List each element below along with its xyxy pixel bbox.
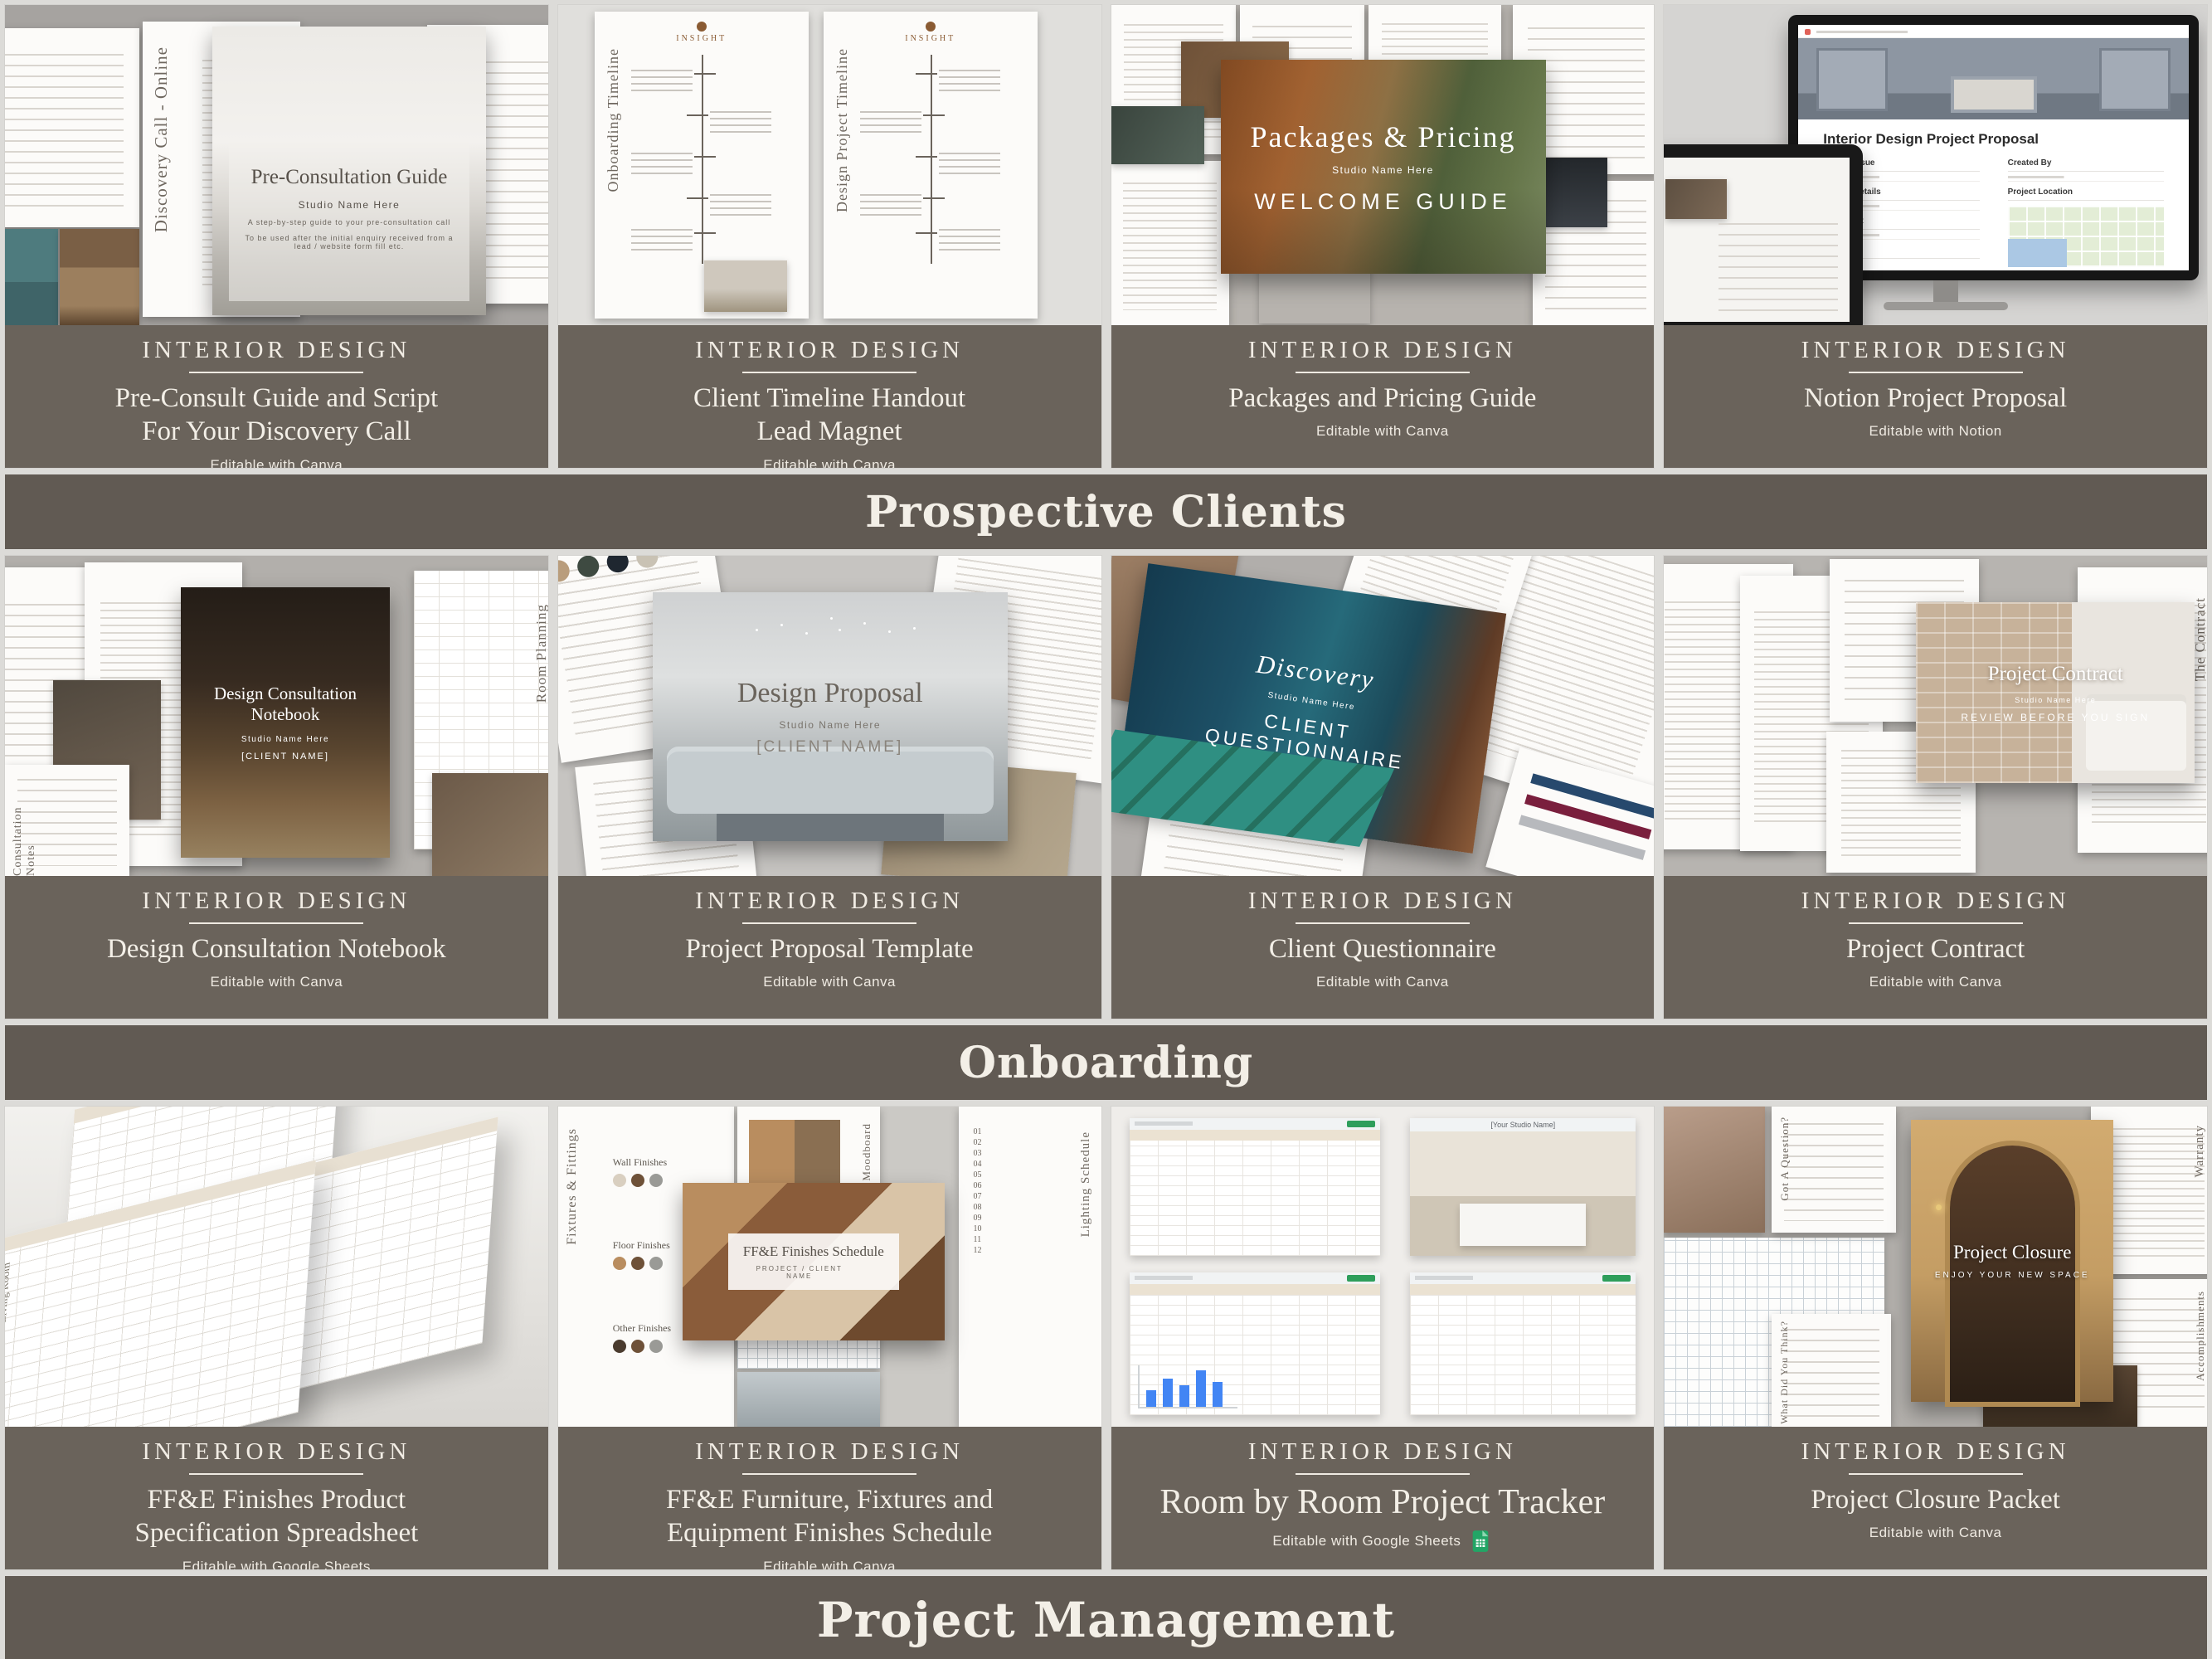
section-banner-onboarding: Onboarding — [5, 1025, 2207, 1100]
product-card-project-proposal: Design Proposal Studio Name Here [CLIENT… — [558, 556, 1101, 1019]
sheet-label: Living Room — [5, 1261, 13, 1325]
photo-warm-living-room — [60, 229, 139, 325]
cover-title: Design Proposal — [737, 678, 923, 709]
product-card-ffe-schedule: Fixtures & Fittings Wall Finishes Floor … — [558, 1107, 1101, 1569]
cover-studio: Studio Name Here — [299, 199, 401, 211]
bed-shape — [2086, 694, 2186, 771]
vertical-label: What Did You Think? — [1778, 1321, 1791, 1424]
thumbnail-project-contract: The Contract Project Contract Studio Nam… — [1664, 556, 2207, 876]
thumbnail-consultation-notebook: Room Planning Consultation Notes Design … — [5, 556, 548, 876]
shelf-right — [2099, 48, 2171, 111]
thumbnail-project-proposal: Design Proposal Studio Name Here [CLIENT… — [558, 556, 1101, 876]
card-note: Editable with Canva — [1111, 423, 1655, 440]
divider-line — [742, 372, 916, 373]
card-note: Editable with Canva — [558, 974, 1101, 990]
field-label: Created By — [2008, 153, 2164, 172]
photo-bedroom — [432, 773, 548, 876]
cover-studio: Studio Name Here — [241, 735, 329, 744]
notion-col-right: Created By Project Location — [2008, 153, 2164, 267]
card-row-2: Room Planning Consultation Notes Design … — [5, 556, 2207, 1019]
vertical-label: Onboarding Timeline — [605, 48, 622, 192]
product-card-ffe-spreadsheet: Living Furniture Living Room INTERIOR DE… — [5, 1107, 548, 1569]
insight-logo: INSIGHT — [595, 22, 809, 43]
thumbnail-notion-proposal: Interior Design Project Proposal Date of… — [1664, 5, 2207, 325]
lighting-schedule-page: 01 02 03 04 05 06 07 08 09 10 11 12 Ligh… — [959, 1107, 1101, 1427]
divider-line — [189, 922, 363, 924]
photo-thumbnail — [1665, 179, 1727, 219]
color-bar — [1519, 815, 1646, 860]
vertical-label: Fixtures & Fittings — [565, 1128, 580, 1245]
divider-line — [1849, 1473, 2023, 1475]
sheet-grid — [1130, 1141, 1380, 1256]
card-note: Editable with Canva — [5, 974, 548, 990]
card-caption: INTERIOR DESIGN Packages and Pricing Gui… — [1111, 325, 1655, 468]
cover-line: A step-by-step guide to your pre-consult… — [248, 218, 451, 226]
sheet-screenshot-kitchen: [Your Studio Name] — [1410, 1118, 1636, 1256]
cover-studio: Studio Name Here — [2015, 696, 2096, 704]
vertical-label: Got A Question? — [1778, 1117, 1791, 1201]
thumbnail-packages-pricing: Packages & Pricing Studio Name Here WELC… — [1111, 5, 1655, 325]
sheet-screenshot — [1130, 1118, 1380, 1256]
chandelier-lights — [830, 617, 833, 620]
card-title: Client Timeline Handout Lead Magnet — [558, 382, 1101, 449]
photo-room — [704, 260, 787, 312]
spreadsheet-sheet: Living Room — [5, 1160, 316, 1427]
notion-topbar — [1798, 25, 2189, 38]
card-title: Project Proposal Template — [558, 932, 1101, 966]
map-thumbnail — [2008, 206, 2164, 267]
text-lines — [1123, 182, 1218, 310]
thumbnail-ffe-spreadsheet: Living Furniture Living Room — [5, 1107, 548, 1427]
card-title: FF&E Furniture, Fixtures and Equipment F… — [558, 1483, 1101, 1550]
cover-welcome-guide: Packages & Pricing Studio Name Here WELC… — [1221, 60, 1546, 274]
card-caption: INTERIOR DESIGN Design Consultation Note… — [5, 876, 548, 1019]
laptop-screen — [1664, 158, 1850, 322]
card-title: Client Questionnaire — [1111, 932, 1655, 966]
notes-page: Consultation Notes — [5, 765, 129, 876]
cover-studio: Studio Name Here — [1332, 164, 1434, 176]
photo-living-room — [737, 1372, 880, 1427]
card-eyebrow: INTERIOR DESIGN — [1664, 888, 2207, 915]
product-card-notion-proposal: Interior Design Project Proposal Date of… — [1664, 5, 2207, 468]
product-card-room-tracker: [Your Studio Name] — [1111, 1107, 1655, 1569]
fireplace — [1951, 76, 2037, 113]
sheet-toolbar — [1130, 1272, 1380, 1284]
vertical-label: Lighting Schedule — [1079, 1131, 1093, 1237]
text-lines — [1784, 1329, 1879, 1417]
timeline-page-left: INSIGHT Onboarding Timeline — [595, 12, 809, 319]
cover-project-contract: Project Contract Studio Name Here REVIEW… — [1916, 602, 2195, 783]
text-lines — [5, 54, 124, 209]
sheet-grid — [1410, 1295, 1636, 1415]
card-eyebrow: INTERIOR DESIGN — [1111, 337, 1655, 364]
sheet-toolbar — [1410, 1272, 1636, 1284]
timeline-entry — [939, 70, 1000, 95]
card-note: Editable with Notion — [1664, 423, 2207, 440]
monitor-stand — [1933, 280, 1958, 304]
sheet-toolbar — [1130, 1118, 1380, 1130]
mini-bar-chart — [1138, 1365, 1237, 1408]
card-caption: INTERIOR DESIGN Project Proposal Templat… — [558, 876, 1101, 1019]
cover-title: Pre-Consultation Guide — [251, 166, 448, 189]
card-title: Packages and Pricing Guide — [1111, 382, 1655, 415]
card-note: Editable with Canva — [558, 457, 1101, 469]
cover-title: Packages & Pricing — [1251, 119, 1516, 154]
card-title: Design Consultation Notebook — [5, 932, 548, 966]
section-banner-prospective-clients: Prospective Clients — [5, 474, 2207, 549]
monitor-base — [1884, 302, 2008, 310]
card-note: Editable with Google Sheets — [5, 1559, 548, 1570]
rug-shape — [717, 814, 944, 841]
timeline-entry — [631, 153, 693, 178]
product-card-packages-pricing: Packages & Pricing Studio Name Here WELC… — [1111, 5, 1655, 468]
cover-studio: Studio Name Here — [1266, 690, 1355, 712]
timeline-entry — [710, 194, 771, 219]
document-page: What Did You Think? — [1772, 1314, 1891, 1427]
vertical-label: Warranty — [2193, 1125, 2207, 1177]
card-title: Project Contract — [1664, 932, 2207, 966]
vertical-label: Design Project Timeline — [834, 48, 851, 212]
document-page: Got A Question? — [1772, 1107, 1896, 1233]
divider-line — [1849, 372, 2023, 373]
card-note: Editable with Canva — [1664, 1525, 2207, 1541]
insight-logo: INSIGHT — [824, 22, 1038, 43]
photo-teal-living-room — [5, 229, 58, 325]
product-card-consultation-notebook: Room Planning Consultation Notes Design … — [5, 556, 548, 1019]
cover-line: REVIEW BEFORE YOU SIGN — [1961, 712, 2150, 723]
card-eyebrow: INTERIOR DESIGN — [5, 888, 548, 915]
timeline-entry — [939, 153, 1000, 178]
cover-line: ENJOY YOUR NEW SPACE — [1935, 1271, 2090, 1280]
thumbnail-ffe-schedule: Fixtures & Fittings Wall Finishes Floor … — [558, 1107, 1101, 1427]
divider-line — [1296, 922, 1470, 924]
lantern-light — [1936, 1204, 1942, 1210]
card-eyebrow: INTERIOR DESIGN — [1111, 1438, 1655, 1466]
thumbnail-pre-consult: Discovery Call - Online Pre-Consultation… — [5, 5, 548, 325]
cover-line: WELCOME GUIDE — [1254, 189, 1512, 215]
card-note: Editable with Google Sheets — [1111, 1530, 1655, 1553]
card-title: Notion Project Proposal — [1664, 382, 2207, 415]
card-title: Pre-Consult Guide and Script For Your Di… — [5, 382, 548, 449]
schedule-numbers: 01 02 03 04 05 06 07 08 09 10 11 12 — [974, 1126, 982, 1256]
cover-line: [CLIENT NAME] — [756, 738, 903, 757]
product-card-client-timeline: INSIGHT Onboarding Timeline INSIGHT Desi… — [558, 5, 1101, 468]
cover-title: Discovery — [1254, 649, 1376, 695]
cover-ffe-schedule: FF&E Finishes Schedule PROJECT / CLIENT … — [683, 1183, 945, 1340]
cover-pre-consultation-guide: Pre-Consultation Guide Studio Name Here … — [212, 27, 486, 315]
vertical-label: Consultation Notes — [12, 773, 38, 876]
timeline-entry — [710, 111, 771, 136]
card-note: Editable with Canva — [1111, 974, 1655, 990]
card-eyebrow: INTERIOR DESIGN — [558, 888, 1101, 915]
cover-project-closure: Project Closure ENJOY YOUR NEW SPACE — [1911, 1120, 2113, 1402]
material-swatches — [613, 1257, 626, 1270]
timeline-entry — [631, 229, 693, 254]
card-eyebrow: INTERIOR DESIGN — [558, 1438, 1101, 1466]
thumbnail-client-timeline: INSIGHT Onboarding Timeline INSIGHT Desi… — [558, 5, 1101, 325]
card-title: FF&E Finishes Product Specification Spre… — [5, 1483, 548, 1550]
timeline-entry — [631, 70, 693, 95]
card-eyebrow: INTERIOR DESIGN — [558, 337, 1101, 364]
timeline-entry — [860, 111, 921, 136]
timeline-page-right: INSIGHT Design Project Timeline — [824, 12, 1038, 319]
cover-design-proposal: Design Proposal Studio Name Here [CLIENT… — [653, 592, 1008, 841]
cover-consultation-notebook: Design Consultation Notebook Studio Name… — [181, 587, 390, 858]
divider-line — [742, 922, 916, 924]
timeline-entry — [860, 194, 921, 219]
sheet-screenshot — [1130, 1272, 1380, 1415]
cover-line: [CLIENT NAME] — [241, 752, 329, 761]
divider-line — [742, 1473, 916, 1475]
card-title: Project Closure Packet — [1664, 1483, 2207, 1516]
color-bar — [1525, 795, 1651, 839]
photo-kitchen — [1410, 1131, 1636, 1256]
cover-title: Project Contract — [1988, 663, 2123, 686]
card-eyebrow: INTERIOR DESIGN — [5, 337, 548, 364]
photo-designer-portrait — [1664, 1107, 1765, 1233]
card-caption: INTERIOR DESIGN Project Contract Editabl… — [1664, 876, 2207, 1019]
thumbnail-project-closure: Got A Question? What Did You Think? Warr… — [1664, 1107, 2207, 1427]
card-eyebrow: INTERIOR DESIGN — [1664, 1438, 2207, 1466]
product-card-project-closure: Got A Question? What Did You Think? Warr… — [1664, 1107, 2207, 1569]
document-page — [5, 28, 139, 227]
thumbnail-client-questionnaire: Kitchen Design Discovery Studio Name Her… — [1111, 556, 1655, 876]
photo-interior — [1111, 106, 1204, 164]
product-collage-sheet: Discovery Call - Online Pre-Consultation… — [0, 0, 2212, 1659]
card-caption: INTERIOR DESIGN FF&E Finishes Product Sp… — [5, 1427, 548, 1569]
card-caption: INTERIOR DESIGN FF&E Furniture, Fixtures… — [558, 1427, 1101, 1569]
notion-page-title: Interior Design Project Proposal — [1823, 131, 2189, 148]
material-swatches — [613, 1340, 626, 1353]
card-caption: INTERIOR DESIGN Room by Room Project Tra… — [1111, 1427, 1655, 1569]
card-row-1: Discovery Call - Online Pre-Consultation… — [5, 5, 2207, 468]
text-lines — [2103, 1128, 2205, 1259]
divider-line — [1296, 1473, 1470, 1475]
document-page — [1111, 161, 1229, 325]
cover-title: FF&E Finishes Schedule — [743, 1243, 884, 1260]
brick-wall-texture — [1916, 602, 2072, 783]
cover-title: Project Closure — [1953, 1242, 2071, 1263]
vertical-label: Room Planning — [533, 604, 548, 703]
card-row-3: Living Furniture Living Room INTERIOR DE… — [5, 1107, 2207, 1569]
color-bar — [1531, 774, 1654, 819]
cover-title: Design Consultation Notebook — [200, 684, 372, 725]
notion-hero-photo — [1798, 38, 2189, 119]
product-card-project-contract: The Contract Project Contract Studio Nam… — [1664, 556, 2207, 1019]
google-sheets-icon — [1469, 1530, 1492, 1553]
sheet-screenshot — [1410, 1272, 1636, 1415]
field-value — [2008, 172, 2164, 182]
card-caption: INTERIOR DESIGN Notion Project Proposal … — [1664, 325, 2207, 468]
card-note: Editable with Canva — [5, 457, 548, 469]
vertical-label: Moodboard — [860, 1123, 873, 1181]
product-card-client-questionnaire: Kitchen Design Discovery Studio Name Her… — [1111, 556, 1655, 1019]
card-eyebrow: INTERIOR DESIGN — [5, 1438, 548, 1466]
cover-discovery-questionnaire: Discovery Studio Name Here CLIENT QUESTI… — [1114, 563, 1505, 854]
card-caption: INTERIOR DESIGN Client Questionnaire Edi… — [1111, 876, 1655, 1019]
card-caption: INTERIOR DESIGN Client Timeline Handout … — [558, 325, 1101, 468]
field-label: Project Location — [2008, 182, 2164, 201]
text-lines — [1719, 223, 1838, 312]
divider-line — [1849, 922, 2023, 924]
vertical-label: Accomplishments — [2194, 1291, 2207, 1381]
card-eyebrow: INTERIOR DESIGN — [1664, 337, 2207, 364]
vertical-label: Discovery Call - Online — [151, 46, 172, 232]
cover-line: PROJECT / CLIENT NAME — [743, 1265, 856, 1280]
sheet-tab-header: [Your Studio Name] — [1410, 1118, 1636, 1131]
card-eyebrow: INTERIOR DESIGN — [1111, 888, 1655, 915]
material-swatches — [613, 1174, 626, 1187]
shelf-left — [1816, 48, 1888, 111]
card-caption: INTERIOR DESIGN Pre-Consult Guide and Sc… — [5, 325, 548, 468]
timeline-entry — [939, 229, 1000, 254]
divider-line — [189, 1473, 363, 1475]
divider-line — [189, 372, 363, 373]
divider-line — [1296, 372, 1470, 373]
text-lines — [1784, 1123, 1884, 1222]
cover-label-strip: FF&E Finishes Schedule PROJECT / CLIENT … — [728, 1233, 899, 1290]
card-caption: INTERIOR DESIGN Project Closure Packet E… — [1664, 1427, 2207, 1569]
section-banner-project-management: Project Management — [5, 1576, 2207, 1659]
cover-studio: Studio Name Here — [779, 719, 881, 731]
thumbnail-room-tracker: [Your Studio Name] — [1111, 1107, 1655, 1427]
card-note: Editable with Canva — [558, 1559, 1101, 1570]
card-title: Room by Room Project Tracker — [1111, 1483, 1655, 1521]
product-card-pre-consult: Discovery Call - Online Pre-Consultation… — [5, 5, 548, 468]
cover-line: To be used after the initial enquiry rec… — [240, 234, 459, 251]
laptop-mockup — [1664, 144, 1863, 325]
sofa-shape — [667, 747, 994, 814]
sheet-header-row — [1410, 1284, 1636, 1295]
card-note: Editable with Canva — [1664, 974, 2207, 990]
sheet-header-row — [1130, 1130, 1380, 1141]
sheet-header-row — [1130, 1284, 1380, 1295]
